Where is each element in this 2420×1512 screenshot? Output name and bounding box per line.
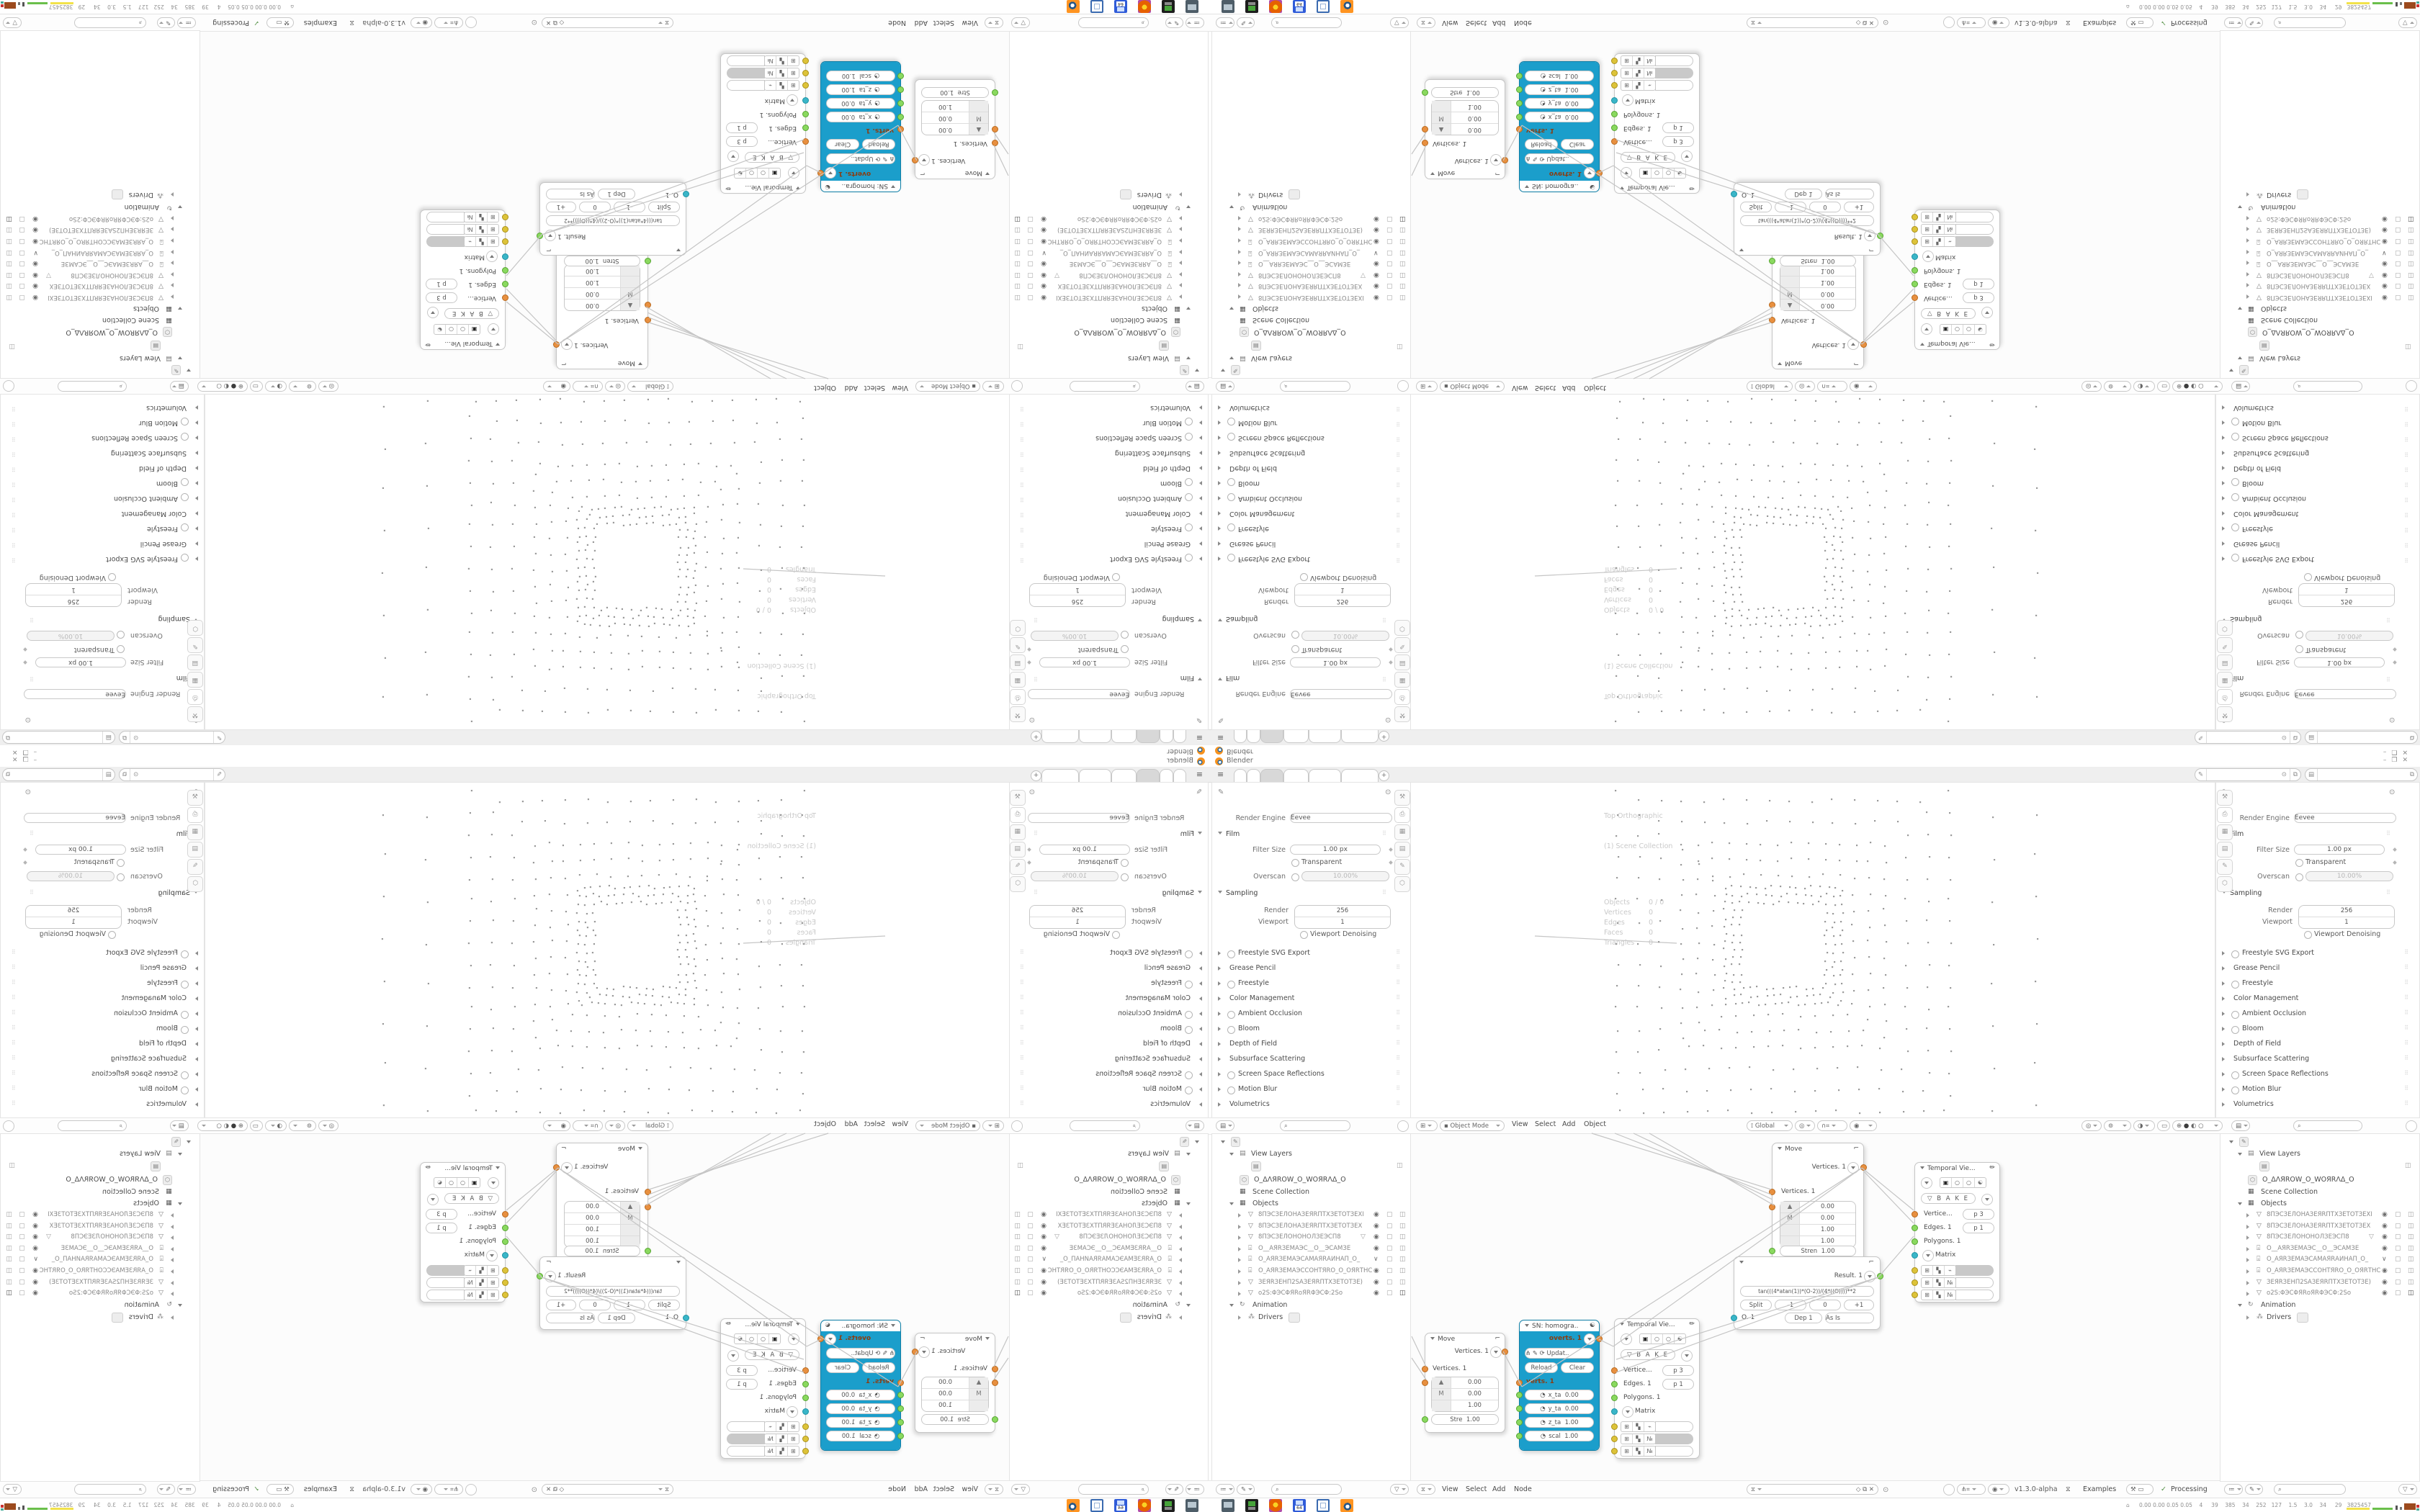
filter-size-field[interactable]: 1.00 px xyxy=(35,845,126,855)
display-mode-buttons[interactable]: ▣○○☯ xyxy=(434,1177,480,1188)
animate-dot[interactable] xyxy=(2393,860,2397,865)
outliner-object-row[interactable]: ▽8ПЭСЗЕЛОНАЗЕЯRПТХЗЕТОТЗЕХI◉▢◫ xyxy=(1212,1210,1411,1221)
viewport-denoising-checkbox[interactable] xyxy=(1300,931,1308,939)
viewport-denoising-checkbox[interactable] xyxy=(2304,931,2312,939)
material-field[interactable] xyxy=(1655,1446,1693,1457)
outliner-object-row[interactable]: ⌻O__АЯRЗЕМАЭС__O__ЭСАМЗЕ◉▢◫ xyxy=(1212,257,1411,268)
outliner-object-row[interactable]: ▽ο2S:ΦЭСΦЯRοЯRΦЭСΦ:2Sο◉▢◫ xyxy=(2220,212,2419,223)
new-tab-button[interactable]: + xyxy=(1379,731,1389,742)
clear-button[interactable]: Clear xyxy=(1561,1362,1594,1373)
frame-button[interactable]: ▭ xyxy=(250,1120,263,1131)
wm-tab[interactable] xyxy=(1173,729,1186,743)
properties-tab-icon[interactable]: ⬡ xyxy=(1394,620,1410,636)
outliner-object-row[interactable]: ▽8ПЭСЗЕЛОНАЗЕЯRПТХЗЕТОТЗЕХI◉▢◫ xyxy=(1,1210,200,1221)
close-button[interactable]: ✕ xyxy=(7,757,18,764)
props-panel-subsurface-scattering[interactable]: Subsurface Scattering⠿ xyxy=(2216,1054,2419,1068)
node-tree-selector[interactable]: ⧖◇ ⧉ ✕ xyxy=(542,1484,673,1495)
node-socket[interactable] xyxy=(802,97,809,104)
display-mode-buttons[interactable]: ▣○○☯ xyxy=(734,168,781,179)
editor-icon[interactable]: ✎ xyxy=(1196,788,1202,796)
outliner-object-row[interactable]: ▽8ПЭСЗЕЛОНАЗЕЯRПТХЗЕТОТЗЕХI◉▢◫ xyxy=(2220,1210,2419,1221)
outliner-object-row[interactable]: ⌻O__АЯRЗЕМАЭС__O__ЭСАМЗЕ◉▢◫ xyxy=(1,1244,200,1255)
cycle-icon[interactable]: ☯ xyxy=(1590,183,1595,190)
camera-icon[interactable]: ◫ xyxy=(1397,343,1403,350)
node-socket[interactable] xyxy=(1912,1238,1918,1245)
filter-size-field[interactable]: 1.00 px xyxy=(1290,845,1381,855)
zero-button[interactable]: 0 xyxy=(579,202,611,212)
material-buttons[interactable]: ⊞▚⌁ xyxy=(764,80,799,91)
node-socket[interactable] xyxy=(1860,1164,1867,1171)
outliner-object-row[interactable]: ▽8ПЭСЗЕЛОНАЗЕЯRПТХЗЕТОТЗЕХ◉▢◫ xyxy=(1009,1222,1208,1233)
menu-select[interactable]: Select xyxy=(933,1485,954,1493)
material-field[interactable] xyxy=(727,1434,765,1444)
drivers-label[interactable]: Drivers xyxy=(129,191,153,199)
vector-fields[interactable]: ▲0.00M0.001.00 xyxy=(921,100,989,135)
outliner-object-row[interactable]: ⌻O__АЯRЗЕМАЭС__O__ЭСАМЗЕ◉▢◫ xyxy=(1009,1244,1208,1255)
node-socket[interactable] xyxy=(1611,1408,1618,1415)
film-section[interactable]: Film xyxy=(1180,830,1202,838)
viewport-denoising-checkbox[interactable] xyxy=(1112,931,1120,939)
xray-toggle[interactable]: ◑ xyxy=(265,381,287,392)
expand-arrow[interactable] xyxy=(178,1304,182,1307)
outliner-object-row[interactable]: ▽ЗЕЯRЗЕНП2SАЗЕЯRПТХЗЕТОТЗЕ)◉▢◫ xyxy=(1009,223,1208,234)
animate-dot[interactable] xyxy=(1027,860,1031,865)
node-editor[interactable]: Move ⌐ Vertices. 1 Vertices. 1 ▲0.00M0.0… xyxy=(199,1133,1010,1482)
node-socket[interactable] xyxy=(802,1436,809,1442)
sn-param-z_ta[interactable]: ◔z_ta 1.00 xyxy=(826,84,895,95)
node-socket[interactable] xyxy=(1912,1225,1918,1231)
frame-button[interactable]: ▭ xyxy=(2157,381,2170,392)
bake-button[interactable]: ▽ B A K E xyxy=(444,1193,499,1204)
menu-select[interactable]: Select xyxy=(1466,19,1487,27)
maximize-button[interactable]: ❐ xyxy=(18,748,29,755)
hamburger-icon[interactable]: ≡ xyxy=(1196,733,1203,742)
node-title[interactable]: Move xyxy=(557,1143,647,1155)
bake-export-buttons[interactable]: ⚒ ▭ xyxy=(2126,1484,2154,1495)
props-panel-freestyle-svg-export[interactable]: Freestyle SVG Export⠿ xyxy=(1,948,204,963)
node-socket[interactable] xyxy=(912,157,918,163)
node-socket[interactable] xyxy=(1912,1267,1918,1274)
depth-field[interactable]: Dep 1 xyxy=(1785,189,1822,199)
pin-icon[interactable]: ⊙ xyxy=(1385,788,1391,796)
viewport-denoising-checkbox[interactable] xyxy=(108,573,116,581)
strength-field[interactable]: Stren 1.00 xyxy=(564,256,640,266)
pin-icon[interactable]: ⊙ xyxy=(130,732,141,743)
material-buttons[interactable]: ⊞▚⌁ xyxy=(764,1421,799,1432)
overscan-checkbox[interactable] xyxy=(1291,873,1299,881)
properties-tab-icon[interactable]: ✎ xyxy=(2217,637,2233,653)
node-move-2[interactable]: Move ⌐ Vertices. 1 Vertices. 1 ▲0.00M0.0… xyxy=(1772,251,1864,369)
expand-arrow[interactable] xyxy=(2229,1140,2233,1143)
bake-button[interactable]: ▽ B A K E xyxy=(1921,308,1976,319)
update-button[interactable]: ⋔ ✎ ⟳ Updat.. xyxy=(1525,1348,1594,1359)
node-socket[interactable] xyxy=(683,1315,689,1321)
drivers-label[interactable]: Drivers xyxy=(129,1313,153,1321)
sn-param-scal[interactable]: ◔scal 1.00 xyxy=(826,1431,895,1441)
hamburger-icon[interactable]: ≡ xyxy=(1217,733,1224,742)
scene-collection-label[interactable]: Scene Collection xyxy=(102,316,159,324)
props-panel-volumetrics[interactable]: Volumetrics⠿ xyxy=(1212,398,1411,413)
node-socket[interactable] xyxy=(645,1204,651,1210)
view-layers-label[interactable]: View Layers xyxy=(120,354,161,362)
outliner-display-mode[interactable]: ✎ xyxy=(1165,1484,1183,1495)
expand-arrow[interactable] xyxy=(1186,1153,1191,1156)
render-engine-select[interactable]: Eevee xyxy=(2294,813,2396,823)
material-buttons[interactable]: ⊞▚№ xyxy=(1621,55,1656,66)
objects-collection-label[interactable]: Objects xyxy=(2261,305,2287,312)
search-input[interactable]: ⌕ xyxy=(1271,1484,1342,1495)
material-field[interactable] xyxy=(1955,212,1994,222)
material-buttons[interactable]: ⊞▚⌁ xyxy=(1921,1265,1956,1276)
viewport-samples-value[interactable]: 1 xyxy=(1030,917,1125,928)
properties-tab-icon[interactable]: ✎ xyxy=(2217,859,2233,875)
outliner-editor-type-button[interactable]: ≔ xyxy=(177,17,196,28)
props-panel-volumetrics[interactable]: Volumetrics⠿ xyxy=(1009,1099,1208,1114)
pin-icon[interactable]: ⊙ xyxy=(25,788,31,796)
reload-button[interactable]: Reload xyxy=(862,1362,895,1373)
props-panel-volumetrics[interactable]: Volumetrics⠿ xyxy=(1,1099,204,1114)
outliner-object-row[interactable]: ▽ЗЕЯRЗЕНП2SАЗЕЯRПТХЗЕТОТЗЕ)◉▢◫ xyxy=(1,223,200,234)
process-check-icon[interactable]: ✓ xyxy=(254,1485,259,1493)
taskbar-icon-frame-tool[interactable] xyxy=(1090,1499,1103,1512)
props-panel-grease-pencil[interactable]: Grease Pencil⠿ xyxy=(2216,963,2419,978)
outliner-display-mode[interactable]: ✎ xyxy=(1165,17,1183,28)
visibility-button[interactable] xyxy=(788,167,799,179)
pivot-select[interactable]: ◎ xyxy=(605,381,625,392)
copy-icon[interactable]: ⧉ xyxy=(120,769,130,780)
node-tree-selector[interactable]: ⧖◇ ⧉ ✕ xyxy=(1747,1484,1878,1495)
outliner-object-row[interactable]: ▽ο2S:ΦЭСΦЯRοЯRΦЭСΦ:2Sο◉▢◫ xyxy=(1212,1289,1411,1300)
expand-arrow[interactable] xyxy=(2229,369,2233,372)
node-tree-selector[interactable]: ✎ ⊙ ⧉ xyxy=(119,731,225,744)
node-socket[interactable] xyxy=(553,1164,560,1171)
viewport-3d[interactable]: Top Orthographic (1) Scene Collection Ob… xyxy=(205,393,1010,730)
outliner-editor-type-button[interactable]: ≔ xyxy=(1216,17,1234,28)
expand-arrow[interactable] xyxy=(1186,1202,1191,1205)
drivers-label[interactable]: Drivers xyxy=(2267,191,2291,199)
view-layers-label[interactable]: View Layers xyxy=(120,1150,161,1158)
animate-dot[interactable] xyxy=(2393,847,2397,852)
wm-tab[interactable] xyxy=(1309,769,1341,783)
props-panel-screen-space-reflections[interactable]: Screen Space Reflections⠿ xyxy=(1009,428,1208,443)
node-socket[interactable] xyxy=(1596,1336,1603,1342)
node-socket[interactable] xyxy=(1611,1436,1618,1442)
expand-arrow[interactable] xyxy=(1229,356,1234,359)
outliner-object-row[interactable]: ⌻O_АЯRЗЕМАЭССОНТЯRО_O_ОЯRТНС◉▢◫ xyxy=(2220,235,2419,246)
overscan-checkbox[interactable] xyxy=(1291,631,1299,639)
props-panel-freestyle[interactable]: Freestyle⠿ xyxy=(2216,978,2419,993)
material-buttons[interactable]: ⊞▚№ xyxy=(764,68,799,78)
gizmo-dropdown[interactable]: ◎ xyxy=(318,381,339,392)
node-socket[interactable] xyxy=(802,138,809,145)
node-socket[interactable] xyxy=(1422,140,1428,146)
dropdown-button[interactable] xyxy=(918,1346,930,1358)
node-title[interactable] xyxy=(540,243,686,255)
node-socket[interactable] xyxy=(1912,267,1918,274)
samples-block[interactable]: 256 1 xyxy=(25,905,122,929)
material-field[interactable] xyxy=(426,236,465,247)
film-section[interactable]: Film xyxy=(1218,674,1240,682)
dropdown-button[interactable] xyxy=(561,338,573,350)
outliner-object-row[interactable]: ⌻O_АЯRЗЕМАЭСАМАЯRАИНАП_O_∨▢◫ xyxy=(1,246,200,257)
examples-menu[interactable]: Examples xyxy=(304,19,337,27)
ring-button[interactable] xyxy=(727,150,739,162)
props-panel-ambient-occlusion[interactable]: Ambient Occlusion⠿ xyxy=(1,489,204,503)
display-mode-buttons[interactable]: ▣○○☯ xyxy=(1639,1333,1686,1344)
visibility-button[interactable] xyxy=(1621,1333,1632,1345)
xray-toggle[interactable]: ◑ xyxy=(2133,381,2155,392)
node-socket[interactable] xyxy=(1516,100,1523,107)
search-input[interactable]: ⌕ xyxy=(2274,17,2346,28)
props-panel-bloom[interactable]: Bloom⠿ xyxy=(1,474,204,488)
minimize-button[interactable]: – xyxy=(2383,757,2392,764)
props-panel-freestyle-svg-export[interactable]: Freestyle SVG Export⠿ xyxy=(1009,948,1208,963)
node-title[interactable]: Move xyxy=(1425,167,1505,179)
sn-param-z_ta[interactable]: ◔z_ta 1.00 xyxy=(826,1417,895,1428)
frame-button[interactable]: ▭ xyxy=(2157,1120,2170,1131)
id-selector[interactable]: ▤ ⧉ xyxy=(2,768,115,781)
transform-orientation-select[interactable]: ⟟ Global xyxy=(627,1120,673,1131)
properties-editor-type-button[interactable]: ▤ xyxy=(170,1120,189,1131)
props-panel-volumetrics[interactable]: Volumetrics⠿ xyxy=(1,398,204,413)
props-panel-bloom[interactable]: Bloom⠿ xyxy=(1,1024,204,1038)
window-buttons[interactable]: –❐✕ xyxy=(2383,757,2413,764)
new-tab-button[interactable]: + xyxy=(1031,731,1041,742)
outliner-editor-type-button[interactable]: ≔ xyxy=(2224,17,2243,28)
dropdown-button[interactable] xyxy=(544,230,556,241)
menu-node[interactable]: Node xyxy=(888,1485,906,1493)
minus-one-button[interactable]: -1 xyxy=(1775,202,1806,212)
transparent-checkbox[interactable] xyxy=(1121,645,1129,653)
camera-icon[interactable]: ◫ xyxy=(2405,1162,2411,1169)
outliner-display-mode[interactable]: ✎ xyxy=(1237,1484,1255,1495)
node-socket[interactable] xyxy=(645,1189,651,1195)
props-panel-color-management[interactable]: Color Management⠿ xyxy=(1,504,204,518)
animation-label[interactable]: Animation xyxy=(125,1301,159,1309)
wm-tab[interactable] xyxy=(1160,769,1173,783)
objects-collection-label[interactable]: Objects xyxy=(1142,305,1168,312)
render-samples-value[interactable]: 256 xyxy=(1295,906,1390,917)
outliner-object-row[interactable]: ▽8ПЭСЗЕЛОНОНОЛЗЕЭСП8▽◉▢◫ xyxy=(2220,269,2419,279)
unlink-icon[interactable]: ✕ xyxy=(1869,19,1874,27)
options-chevron[interactable] xyxy=(1011,380,1023,392)
overscan-checkbox[interactable] xyxy=(117,631,125,639)
processing-toggle[interactable]: Processing xyxy=(212,19,249,27)
strength-field[interactable]: Stren 1.00 xyxy=(564,1246,640,1256)
pencil-icon[interactable]: ✏ xyxy=(425,341,431,348)
wm-tab[interactable] xyxy=(1247,769,1260,783)
properties-tab-icon[interactable]: ⬡ xyxy=(2217,876,2233,892)
taskbar-icon-screenshot-tool[interactable] xyxy=(1186,1499,1198,1512)
node-temporal-viewer-1[interactable]: Temporal Vie...✏▣○○☯▽ B A K EVertice...p… xyxy=(1614,1318,1700,1459)
outliner-object-row[interactable]: ▽ЗЕЯRЗЕНП2SАЗЕЯRПТХЗЕТОТЗЕ)◉▢◫ xyxy=(1009,1278,1208,1289)
viewport-3d[interactable]: Top Orthographic (1) Scene Collection Ob… xyxy=(205,782,1010,1119)
workspace-object-name[interactable]: O_ΔΛЯROW_O_WOЯRΛΔ_O xyxy=(2262,1176,2354,1184)
node-socket[interactable] xyxy=(1731,1315,1737,1321)
examples-menu[interactable]: Examples xyxy=(304,1485,337,1493)
props-panel-screen-space-reflections[interactable]: Screen Space Reflections⠿ xyxy=(1009,1069,1208,1084)
pin-icon[interactable]: ⊙ xyxy=(1029,788,1035,796)
props-panel-color-management[interactable]: Color Management⠿ xyxy=(1212,994,1411,1008)
properties-tab-icon[interactable]: ✎ xyxy=(187,859,203,875)
copy-icon[interactable]: ⧉ xyxy=(2407,769,2417,780)
expand-arrow[interactable] xyxy=(1186,356,1191,359)
render-engine-select[interactable]: Eevee xyxy=(24,689,126,699)
filter-button[interactable]: ▽ xyxy=(1011,17,1030,28)
menu-node[interactable]: Node xyxy=(1514,1485,1532,1493)
node-socket[interactable] xyxy=(1516,73,1523,79)
new-tab-button[interactable]: + xyxy=(1379,770,1389,781)
matrix-button[interactable] xyxy=(486,251,498,262)
node-title[interactable]: Temporal Vie... xyxy=(721,181,805,193)
draft-toggle[interactable]: ◉ xyxy=(1988,17,2009,28)
animate-dot[interactable] xyxy=(2393,647,2397,652)
expand-arrow[interactable] xyxy=(187,369,191,372)
reload-button[interactable]: Reload xyxy=(1525,139,1558,150)
display-mode-buttons[interactable]: ▣○○☯ xyxy=(1940,1177,1986,1188)
bake-export-buttons[interactable]: ⚒ ▭ xyxy=(266,17,294,28)
node-socket[interactable] xyxy=(802,125,809,131)
material-field[interactable] xyxy=(1655,1421,1693,1432)
props-panel-motion-blur[interactable]: Motion Blur⠿ xyxy=(2216,413,2419,428)
frame-button[interactable]: ▭ xyxy=(250,381,263,392)
props-panel-color-management[interactable]: Color Management⠿ xyxy=(1,994,204,1008)
props-panel-screen-space-reflections[interactable]: Screen Space Reflections⠿ xyxy=(1,1069,204,1084)
properties-tab-icon[interactable]: ⎙ xyxy=(1010,807,1026,823)
wm-tab[interactable] xyxy=(1341,729,1379,743)
viewport-samples-value[interactable]: 1 xyxy=(1295,584,1390,595)
outliner-object-row[interactable]: ▽ЗЕЯRЗЕНП2SАЗЕЯRПТХЗЕТОТЗЕ)◉▢◫ xyxy=(2220,223,2419,234)
dropdown-button[interactable] xyxy=(1490,1346,1502,1358)
drivers-badge[interactable] xyxy=(1120,189,1131,199)
camera-icon[interactable]: ◫ xyxy=(1017,1162,1023,1169)
animation-label[interactable]: Animation xyxy=(125,203,159,211)
view-layer-chip[interactable]: ▤ xyxy=(2259,1161,2269,1171)
outliner-object-row[interactable]: ⌻O__АЯRЗЕМАЭС__O__ЭСАМЗЕ◉▢◫ xyxy=(2220,1244,2419,1255)
wm-tab[interactable] xyxy=(1079,729,1111,743)
node-editor[interactable]: Move ⌐ Vertices. 1 Vertices. 1 ▲0.00M0.0… xyxy=(1410,1133,2221,1482)
node-socket[interactable] xyxy=(1611,58,1618,64)
menu-view[interactable]: View xyxy=(1512,384,1528,392)
render-samples-value[interactable]: 256 xyxy=(1295,595,1390,606)
outliner-editor-type-button[interactable]: ≔ xyxy=(2224,1484,2243,1495)
node-socket[interactable] xyxy=(802,82,809,89)
properties-tab-icon[interactable]: ⬡ xyxy=(2217,620,2233,636)
properties-tab-icon[interactable]: ⬡ xyxy=(187,876,203,892)
examples-menu[interactable]: Examples xyxy=(2083,19,2116,27)
options-chevron[interactable] xyxy=(1397,1120,1409,1132)
node-socket[interactable] xyxy=(1516,1433,1523,1439)
properties-editor-type-button[interactable]: ▤ xyxy=(2231,381,2250,392)
sn-param-scal[interactable]: ◔scal 1.00 xyxy=(1525,1431,1594,1441)
dropdown-button[interactable] xyxy=(1490,154,1502,166)
outliner-editor-type-button[interactable]: ≔ xyxy=(1216,1484,1234,1495)
props-panel-depth-of-field[interactable]: Depth of Field⠿ xyxy=(1212,1039,1411,1053)
matrix-button[interactable] xyxy=(1922,1250,1934,1261)
properties-tab-icon[interactable]: ▦ xyxy=(187,672,203,688)
menu-select[interactable]: Select xyxy=(1535,384,1556,392)
properties-tab-icon[interactable]: ⎙ xyxy=(187,807,203,823)
objects-collection-label[interactable]: Objects xyxy=(133,305,159,312)
outliner-object-row[interactable]: ▽ЗЕЯRЗЕНП2SАЗЕЯRПТХЗЕТОТЗЕ)◉▢◫ xyxy=(1212,1278,1411,1289)
menu-node[interactable]: Node xyxy=(1514,19,1532,27)
gizmo-dropdown[interactable]: ◎ xyxy=(318,1120,339,1131)
props-panel-bloom[interactable]: Bloom⠿ xyxy=(1212,1024,1411,1038)
node-title[interactable]: Move xyxy=(557,357,647,369)
properties-tab-icon[interactable]: ⚒ xyxy=(1394,706,1410,722)
overscan-checkbox[interactable] xyxy=(2295,631,2303,639)
sampling-section[interactable]: Sampling xyxy=(1218,889,1258,897)
transform-orientation-select[interactable]: ⟟ Global xyxy=(1747,1120,1793,1131)
node-socket[interactable] xyxy=(1516,1419,1523,1426)
outliner-object-row[interactable]: ▽8ПЭСЗЕЛОНАЗЕЯRПТХЗЕТОТЗЕХI◉▢◫ xyxy=(1009,1210,1208,1221)
fake-user-icon[interactable]: ◇ xyxy=(560,19,565,27)
pin-icon[interactable]: ⊙ xyxy=(1883,1486,1888,1494)
shading-mode-switch[interactable]: ⊕ ● ◐ ○ xyxy=(2172,1120,2223,1131)
bake-button[interactable]: ▽ B A K E xyxy=(745,152,799,163)
samples-block[interactable]: 256 1 xyxy=(1294,583,1391,607)
menu-select[interactable]: Select xyxy=(864,384,885,392)
menu-view[interactable]: View xyxy=(1442,19,1458,27)
wm-tab-active[interactable] xyxy=(1137,729,1160,743)
props-panel-bloom[interactable]: Bloom⠿ xyxy=(2216,1024,2419,1038)
node-socket[interactable] xyxy=(1769,258,1775,264)
taskbar-icon-firefox[interactable] xyxy=(1269,1499,1282,1512)
processing-toggle[interactable]: Processing xyxy=(2171,1485,2208,1493)
menu-object[interactable]: Object xyxy=(1584,384,1606,392)
material-buttons[interactable]: ⊞▚№ xyxy=(1621,68,1656,78)
samples-block[interactable]: 256 1 xyxy=(1029,583,1126,607)
visibility-button[interactable] xyxy=(488,1177,499,1189)
shading-mode-switch[interactable]: ⊕ ● ◐ ○ xyxy=(197,381,248,392)
drivers-badge[interactable] xyxy=(1120,1313,1131,1323)
node-tree-selector[interactable]: ⧖◇ ⧉ ✕ xyxy=(1747,17,1878,28)
material-buttons[interactable]: ⊞▚№ xyxy=(464,212,499,222)
props-panel-freestyle[interactable]: Freestyle⠿ xyxy=(1,978,204,993)
taskbar-icon-frame-tool[interactable] xyxy=(1317,0,1330,13)
outliner-object-row[interactable]: ▽8ПЭСЗЕЛОНАЗЕЯRПТХЗЕТОТЗЕХ◉▢◫ xyxy=(1212,1222,1411,1233)
wm-tab[interactable] xyxy=(1111,729,1137,743)
wm-tab-active[interactable] xyxy=(1260,729,1283,743)
node-title[interactable]: Move xyxy=(915,1333,995,1345)
expand-arrow[interactable] xyxy=(1221,369,1225,372)
sampling-section[interactable]: Sampling xyxy=(1162,889,1202,897)
outliner-object-row[interactable]: ⌻O_АЯRЗЕМАЭССОНТЯRО_O_ОЯRТНС◉▢◫ xyxy=(1,235,200,246)
copy-icon[interactable]: ⧉ xyxy=(2290,732,2300,743)
options-chevron[interactable] xyxy=(2406,380,2417,392)
xray-toggle[interactable]: ◑ xyxy=(2133,1120,2155,1131)
clear-button[interactable]: Clear xyxy=(1561,139,1594,150)
node-editor[interactable]: Move ⌐ Vertices. 1 Vertices. 1 ▲0.00M0.0… xyxy=(199,30,1010,379)
material-buttons[interactable]: ⊞▚№ xyxy=(1621,1434,1656,1444)
viewport-samples-value[interactable]: 1 xyxy=(2299,917,2394,928)
node-socket[interactable] xyxy=(1912,214,1918,220)
update-button[interactable]: ⋔ ✎ ⟳ Updat.. xyxy=(826,153,895,164)
props-panel-grease-pencil[interactable]: Grease Pencil⠿ xyxy=(1212,534,1411,549)
draft-toggle[interactable]: ◉ xyxy=(1988,1484,2009,1495)
strength-field[interactable]: Stre 1.00 xyxy=(1431,1414,1499,1425)
props-panel-ambient-occlusion[interactable]: Ambient Occlusion⠿ xyxy=(1,1009,204,1023)
overscan-checkbox[interactable] xyxy=(1121,873,1129,881)
collapsed-arrow[interactable] xyxy=(1179,192,1182,197)
node-socket[interactable] xyxy=(1769,1204,1775,1210)
expand-arrow[interactable] xyxy=(178,205,182,208)
copy-icon[interactable]: ⧉ xyxy=(2290,769,2300,780)
edges-count[interactable]: p 1 xyxy=(426,279,457,289)
node-socket[interactable] xyxy=(897,1405,904,1412)
outliner-object-row[interactable]: ▽8ПЭСЗЕЛОНАЗЕЯRПТХЗЕТОТЗЕХ◉▢◫ xyxy=(1009,279,1208,290)
animation-label[interactable]: Animation xyxy=(2261,203,2295,211)
